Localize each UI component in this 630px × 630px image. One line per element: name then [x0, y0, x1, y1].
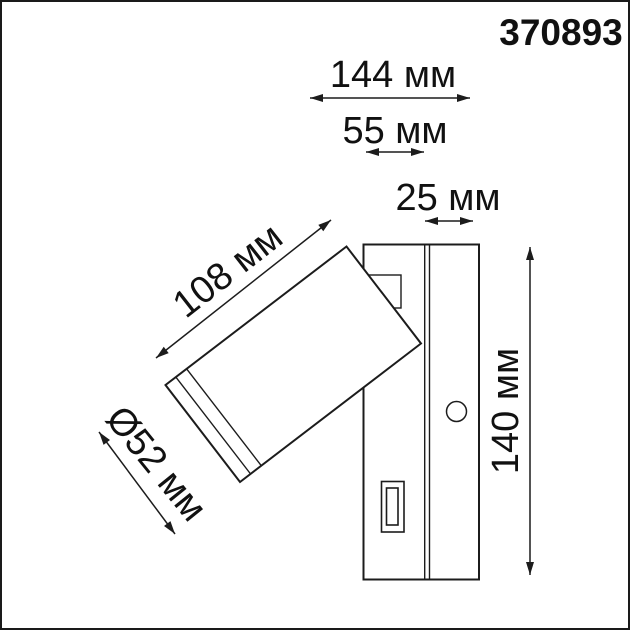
dim-label-depth: 25 мм	[395, 179, 500, 217]
technical-drawing-canvas: 370893 144 мм 55 мм 25 мм 108 мм Ø52 мм …	[0, 0, 630, 630]
dim-label-height: 140 мм	[487, 348, 525, 474]
dim-label-base-width: 55 мм	[342, 112, 447, 150]
dim-label-total-width: 144 мм	[330, 56, 456, 94]
lamp-dimension-drawing	[2, 2, 630, 630]
product-code: 370893	[499, 12, 622, 54]
